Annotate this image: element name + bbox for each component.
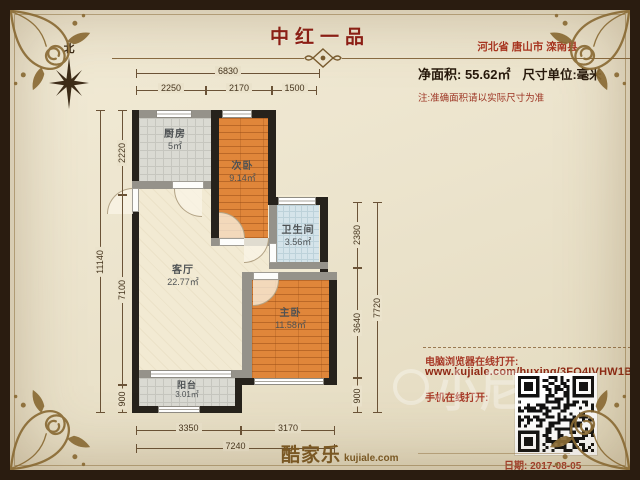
door-arc <box>107 188 133 214</box>
room-area: 22.77㎡ <box>138 277 228 289</box>
room-area: 5㎡ <box>139 141 211 153</box>
dim-top-seg: 1500 <box>272 90 317 91</box>
divider-ornament-icon <box>304 46 342 75</box>
room-area: 9.14㎡ <box>217 173 268 185</box>
dim-right-seg: 3640 <box>357 268 358 378</box>
wall <box>268 110 276 205</box>
logo-text-cn: 酷家乐 <box>281 445 341 466</box>
room-name: 次卧 <box>217 160 268 173</box>
room-kitchen-label: 厨房 5㎡ <box>139 128 211 153</box>
dim-left-seg: 2220 <box>122 110 123 195</box>
dim-left-seg: 7100 <box>122 195 123 385</box>
floorplan-poster: 中红一品 河北省 唐山市 滦南县 净面积: 55.62㎡尺寸单位:毫米 注:准确… <box>0 0 640 480</box>
room-area: 11.58㎡ <box>252 320 329 332</box>
dim-top-seg: 2170 <box>206 90 272 91</box>
dim-right-seg: 900 <box>357 378 358 413</box>
entry-door-leaf <box>132 188 139 212</box>
room-name: 卫生间 <box>272 224 324 237</box>
watermark-text: 小尼 <box>435 355 523 419</box>
door-leaf <box>172 181 204 189</box>
disclaimer-note: 注:准确面积请以实际尺寸为准 <box>418 90 544 104</box>
dim-bottom-seg: 3170 <box>241 430 335 431</box>
window <box>254 378 324 385</box>
watermark: 小尼 <box>393 355 523 419</box>
corner-flourish-icon <box>546 381 632 472</box>
window <box>158 406 200 413</box>
dim-top-total: 6830 <box>136 73 320 74</box>
corner-flourish-icon <box>8 8 94 99</box>
room-living-label: 客厅 22.77㎡ <box>138 264 228 289</box>
footer-divider <box>423 347 640 348</box>
wall <box>132 212 139 413</box>
room-area: 3.56㎡ <box>272 237 324 249</box>
net-area-text: 净面积: 55.62㎡ <box>418 67 510 82</box>
dim-top-seg: 2250 <box>136 90 206 91</box>
door-leaf <box>253 272 279 280</box>
wall <box>269 262 328 269</box>
room-master-label: 主卧 11.58㎡ <box>252 307 329 332</box>
room-bathroom-label: 卫生间 3.56㎡ <box>272 224 324 249</box>
room-bedroom2-label: 次卧 9.14㎡ <box>217 160 268 185</box>
room-name: 厨房 <box>139 128 211 141</box>
window <box>222 110 252 118</box>
room-area: 3.01㎡ <box>139 391 235 400</box>
window <box>156 110 192 118</box>
corner-flourish-icon <box>546 8 632 99</box>
kujiale-logo: 酷家乐kujiale.com <box>281 440 398 467</box>
dim-left-total: 11140 <box>100 110 101 413</box>
dim-right-total: 7720 <box>377 202 378 413</box>
room-name: 客厅 <box>138 264 228 277</box>
wall <box>242 280 252 378</box>
door-leaf <box>219 238 245 246</box>
room-name: 主卧 <box>252 307 329 320</box>
logo-text-en: kujiale.com <box>344 453 398 464</box>
wall <box>132 110 139 188</box>
wall <box>329 272 337 385</box>
header-divider <box>112 58 304 59</box>
watermark-ring-icon <box>393 369 429 405</box>
room-balcony-label: 阳台 3.01㎡ <box>139 381 235 400</box>
dim-right-seg: 2380 <box>357 202 358 268</box>
dim-left-seg: 900 <box>122 385 123 413</box>
corner-flourish-icon <box>8 381 94 472</box>
balcony-slider-window <box>150 370 232 378</box>
dim-bottom-seg: 3350 <box>136 430 241 431</box>
window <box>278 197 316 205</box>
